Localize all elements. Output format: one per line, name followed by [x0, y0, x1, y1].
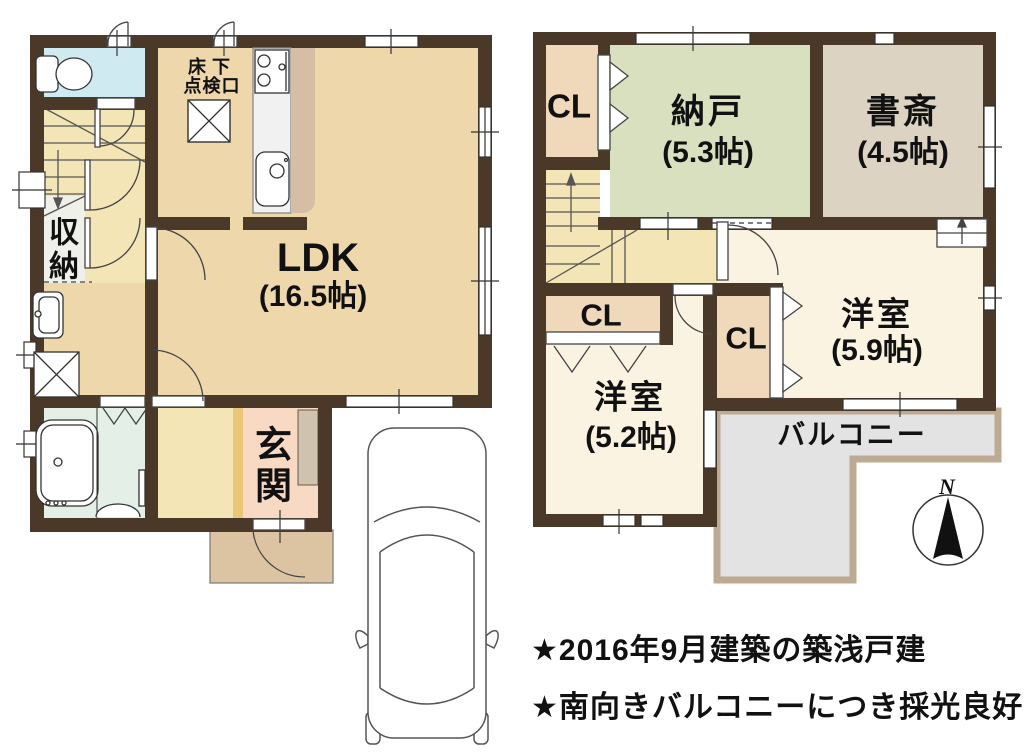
label-closet-mid: CL [725, 323, 766, 354]
label-closet-top: CL [547, 90, 591, 123]
door-hall-ldk [152, 396, 205, 407]
door-entrance [253, 519, 305, 530]
door-toilet [97, 98, 135, 109]
genkan-step [233, 408, 243, 518]
car-mirror-right [486, 631, 498, 648]
label-balcony: バルコニー [777, 421, 926, 449]
door-corridor-ldk [146, 227, 157, 280]
door-closet-mid [770, 287, 783, 398]
label-storage: 収納 [45, 216, 75, 284]
bathtub [36, 420, 98, 506]
opening-hall-nando [640, 218, 698, 229]
window-shosai-top [875, 33, 894, 44]
label-yoshitsu52-size: (5.2帖) [585, 423, 677, 453]
label-genkan: 玄関 [252, 425, 289, 507]
kitchen-counter [291, 48, 315, 213]
door-hall-y52 [673, 284, 713, 295]
note-line1: ★2016年9月建築の築浅戸建 [531, 625, 926, 669]
hall2f-floor [546, 230, 717, 283]
door-bathroom-fold [100, 396, 145, 407]
label-nando: 納戸 [671, 95, 745, 129]
label-closet-bottom: CL [580, 300, 621, 331]
label-yoshitsu59: 洋室 [841, 298, 913, 331]
note-line2: ★南向きバルコニーにつき採光良好 [531, 682, 1023, 726]
window-y52-balcony [704, 410, 716, 468]
floorplan-canvas: 床下 点検口 LDK (16.5帖) 収納 玄関 CL 納戸 (5.3帖) 書斎… [0, 0, 1024, 756]
hall1f-floor [158, 408, 233, 518]
nando-floor [610, 45, 810, 217]
label-ldk: LDK [277, 238, 359, 278]
door-closet1f-2 [85, 218, 90, 268]
door-closet-bottom [546, 332, 660, 344]
toilet-fixture [36, 56, 58, 92]
label-underfloor-hatch-line1: 床下 [188, 58, 236, 76]
door-closet1f-1 [85, 160, 90, 210]
entrance-porch [210, 530, 333, 583]
shoe-cabinet [298, 410, 318, 485]
door-closet-top [598, 55, 610, 150]
car-mirror-left [356, 631, 368, 648]
label-yoshitsu59-size: (5.9帖) [831, 336, 923, 366]
label-ldk-size: (16.5帖) [259, 282, 367, 312]
bath-door-leaf [139, 470, 145, 506]
label-shosai-size: (4.5帖) [857, 138, 949, 168]
label-shosai: 書斎 [866, 95, 940, 129]
compass-icon [913, 495, 983, 565]
car-icon [356, 428, 498, 744]
label-nando-size: (5.3帖) [662, 138, 754, 168]
label-yoshitsu52: 洋室 [594, 381, 666, 414]
window-y52-south2 [641, 515, 663, 526]
label-underfloor-hatch-line2: 点検口 [184, 77, 241, 95]
label-north: N [939, 476, 955, 498]
door-hall-y59 [717, 222, 728, 280]
shosai-floor [823, 45, 983, 217]
